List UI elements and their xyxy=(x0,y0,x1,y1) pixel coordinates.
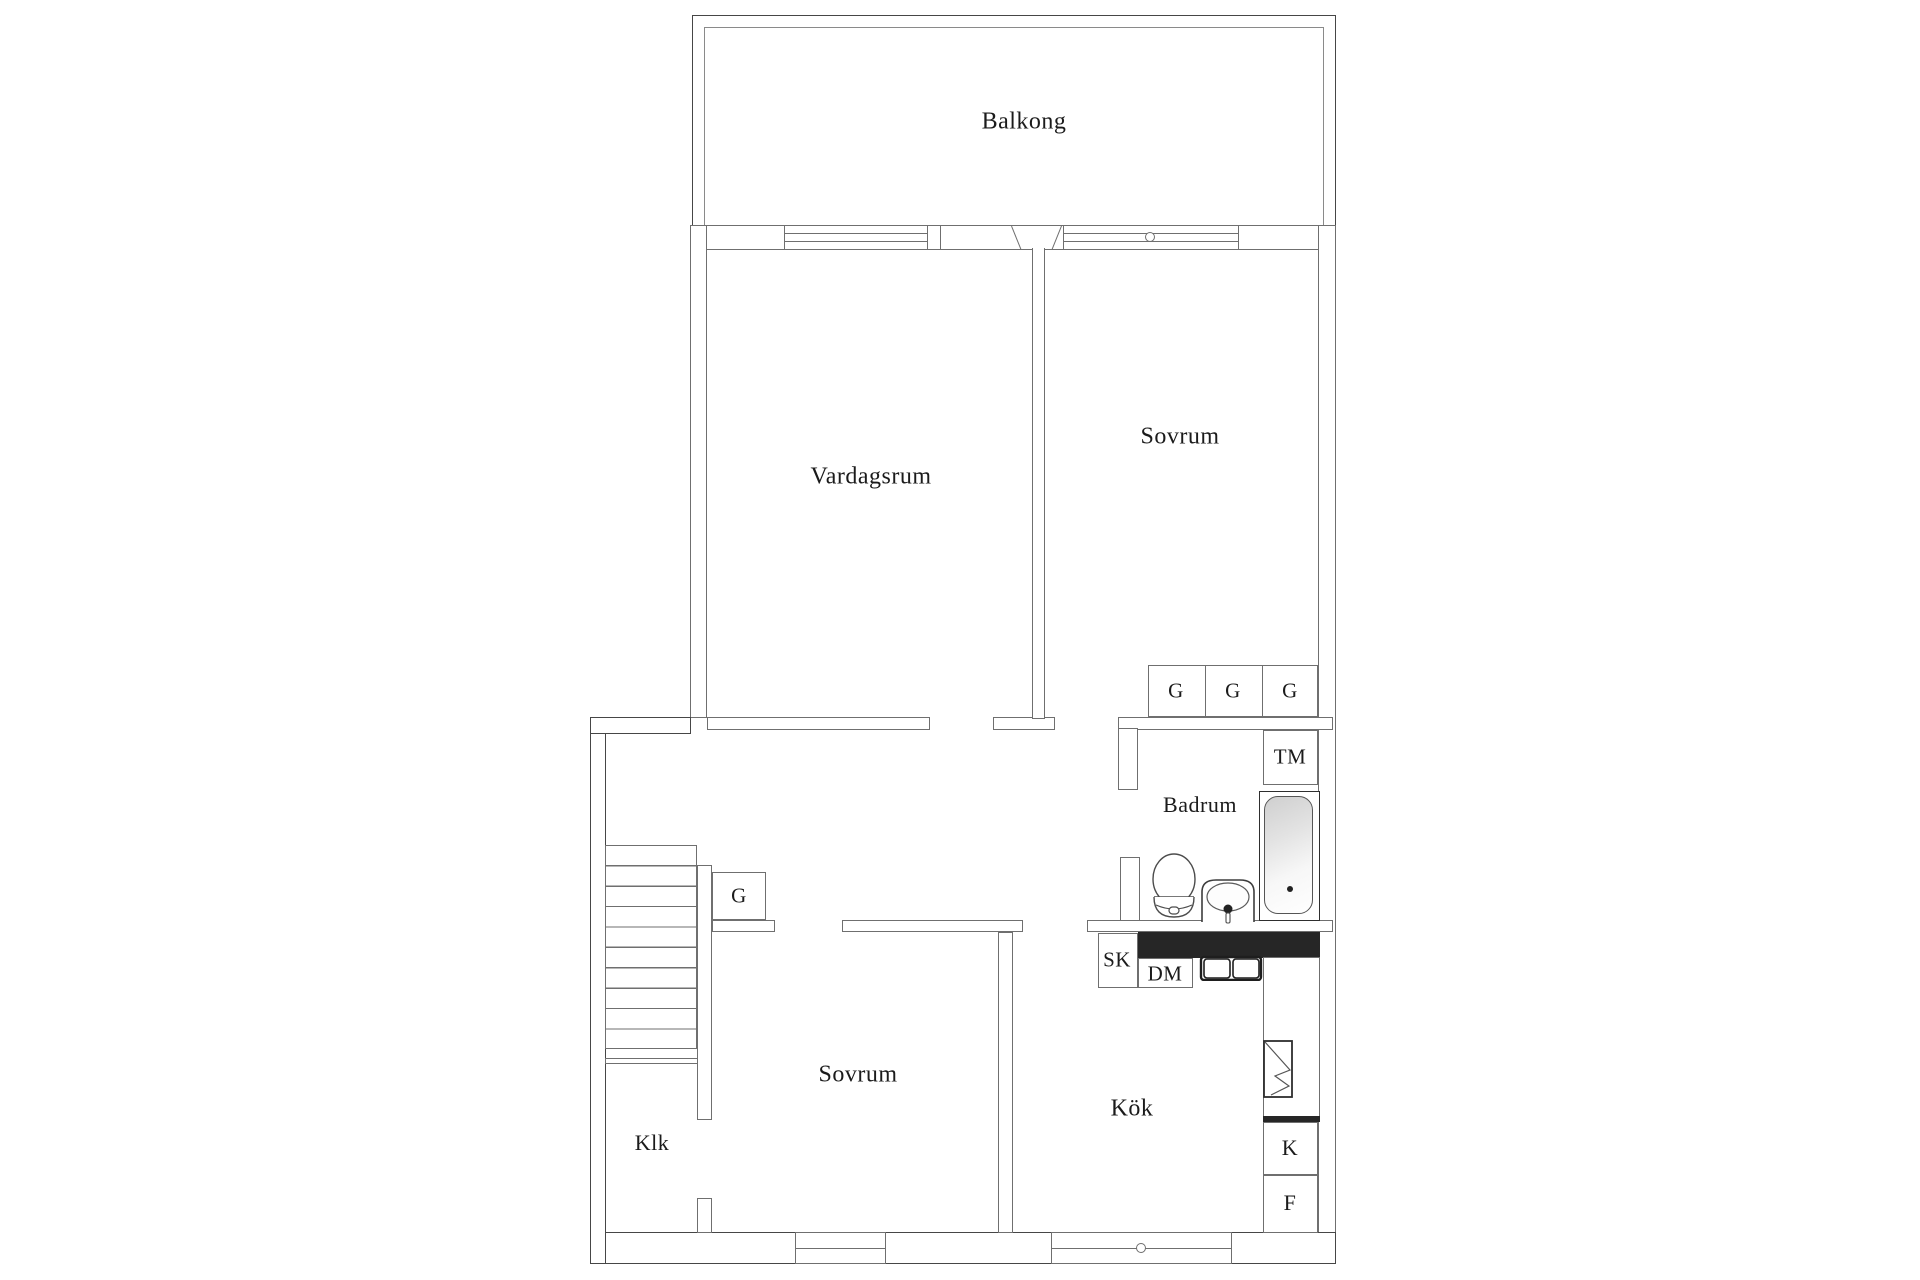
room-label-balcony: Balkong xyxy=(982,109,1067,136)
wall-divider-foot xyxy=(993,717,1055,730)
stove xyxy=(1263,1040,1293,1098)
dishwasher-label: DM xyxy=(1148,962,1183,987)
window-post xyxy=(927,225,941,250)
wall-klk-top xyxy=(605,1058,698,1064)
wall-bathroom-jamb-lower xyxy=(1120,857,1140,921)
wall-hall-wardrobe-stub xyxy=(712,920,775,932)
staircase xyxy=(605,845,697,1049)
room-label-kitchen: Kök xyxy=(1111,1096,1154,1123)
window-bedroom2-glazing xyxy=(795,1248,886,1249)
wall-upper-left xyxy=(690,225,707,718)
toilet xyxy=(1150,853,1198,923)
wall-bathroom-jamb-upper xyxy=(1118,728,1138,790)
window-kitchen-vent xyxy=(1136,1243,1146,1253)
washbasin xyxy=(1200,876,1256,924)
wardrobe-label-3: G xyxy=(1282,679,1298,704)
wall-livingroom-bottom xyxy=(707,717,930,730)
wall-divider xyxy=(1032,247,1045,719)
floor-plan: Balkong xyxy=(0,0,1920,1280)
wall-right xyxy=(1318,225,1336,1264)
window-living-glazing-1 xyxy=(784,233,927,234)
bathtub-basin xyxy=(1264,796,1313,914)
window-bedroom-end-left xyxy=(1063,226,1064,249)
room-label-closet: Klk xyxy=(635,1130,670,1156)
wardrobe-label-1: G xyxy=(1168,679,1184,704)
washing-machine-label: TM xyxy=(1274,745,1307,770)
room-label-bedroom-top: Sovrum xyxy=(1140,424,1219,451)
wall-bedroom2-top xyxy=(842,920,1023,932)
wardrobe-divider-2 xyxy=(1262,666,1263,716)
window-bedroom-end-right xyxy=(1238,226,1239,249)
window-living-end-left xyxy=(784,226,785,249)
wall-stairs-right xyxy=(697,865,712,1120)
window-bedroom-vent xyxy=(1145,232,1155,242)
cabinet-label: SK xyxy=(1103,948,1131,973)
room-label-living: Vardagsrum xyxy=(811,464,932,491)
wardrobe-divider-1 xyxy=(1205,666,1206,716)
room-label-bathroom: Badrum xyxy=(1163,792,1237,818)
wardrobe-label-2: G xyxy=(1225,679,1241,704)
bathtub xyxy=(1259,791,1320,921)
wall-bathroom-top xyxy=(1118,717,1333,730)
wall-kitchen-left xyxy=(998,932,1013,1233)
fridge-label: K xyxy=(1282,1135,1298,1161)
room-label-bedroom-bottom: Sovrum xyxy=(818,1062,897,1089)
wall-hall-top xyxy=(590,717,691,734)
hall-wardrobe-label: G xyxy=(731,884,747,909)
freezer-label: F xyxy=(1284,1190,1297,1216)
bathtub-drain xyxy=(1287,886,1293,892)
wall-left xyxy=(590,717,606,1264)
wall-klk-jamb xyxy=(697,1198,712,1233)
window-living-glazing-2 xyxy=(784,241,927,242)
kitchen-sink xyxy=(1199,955,1263,981)
